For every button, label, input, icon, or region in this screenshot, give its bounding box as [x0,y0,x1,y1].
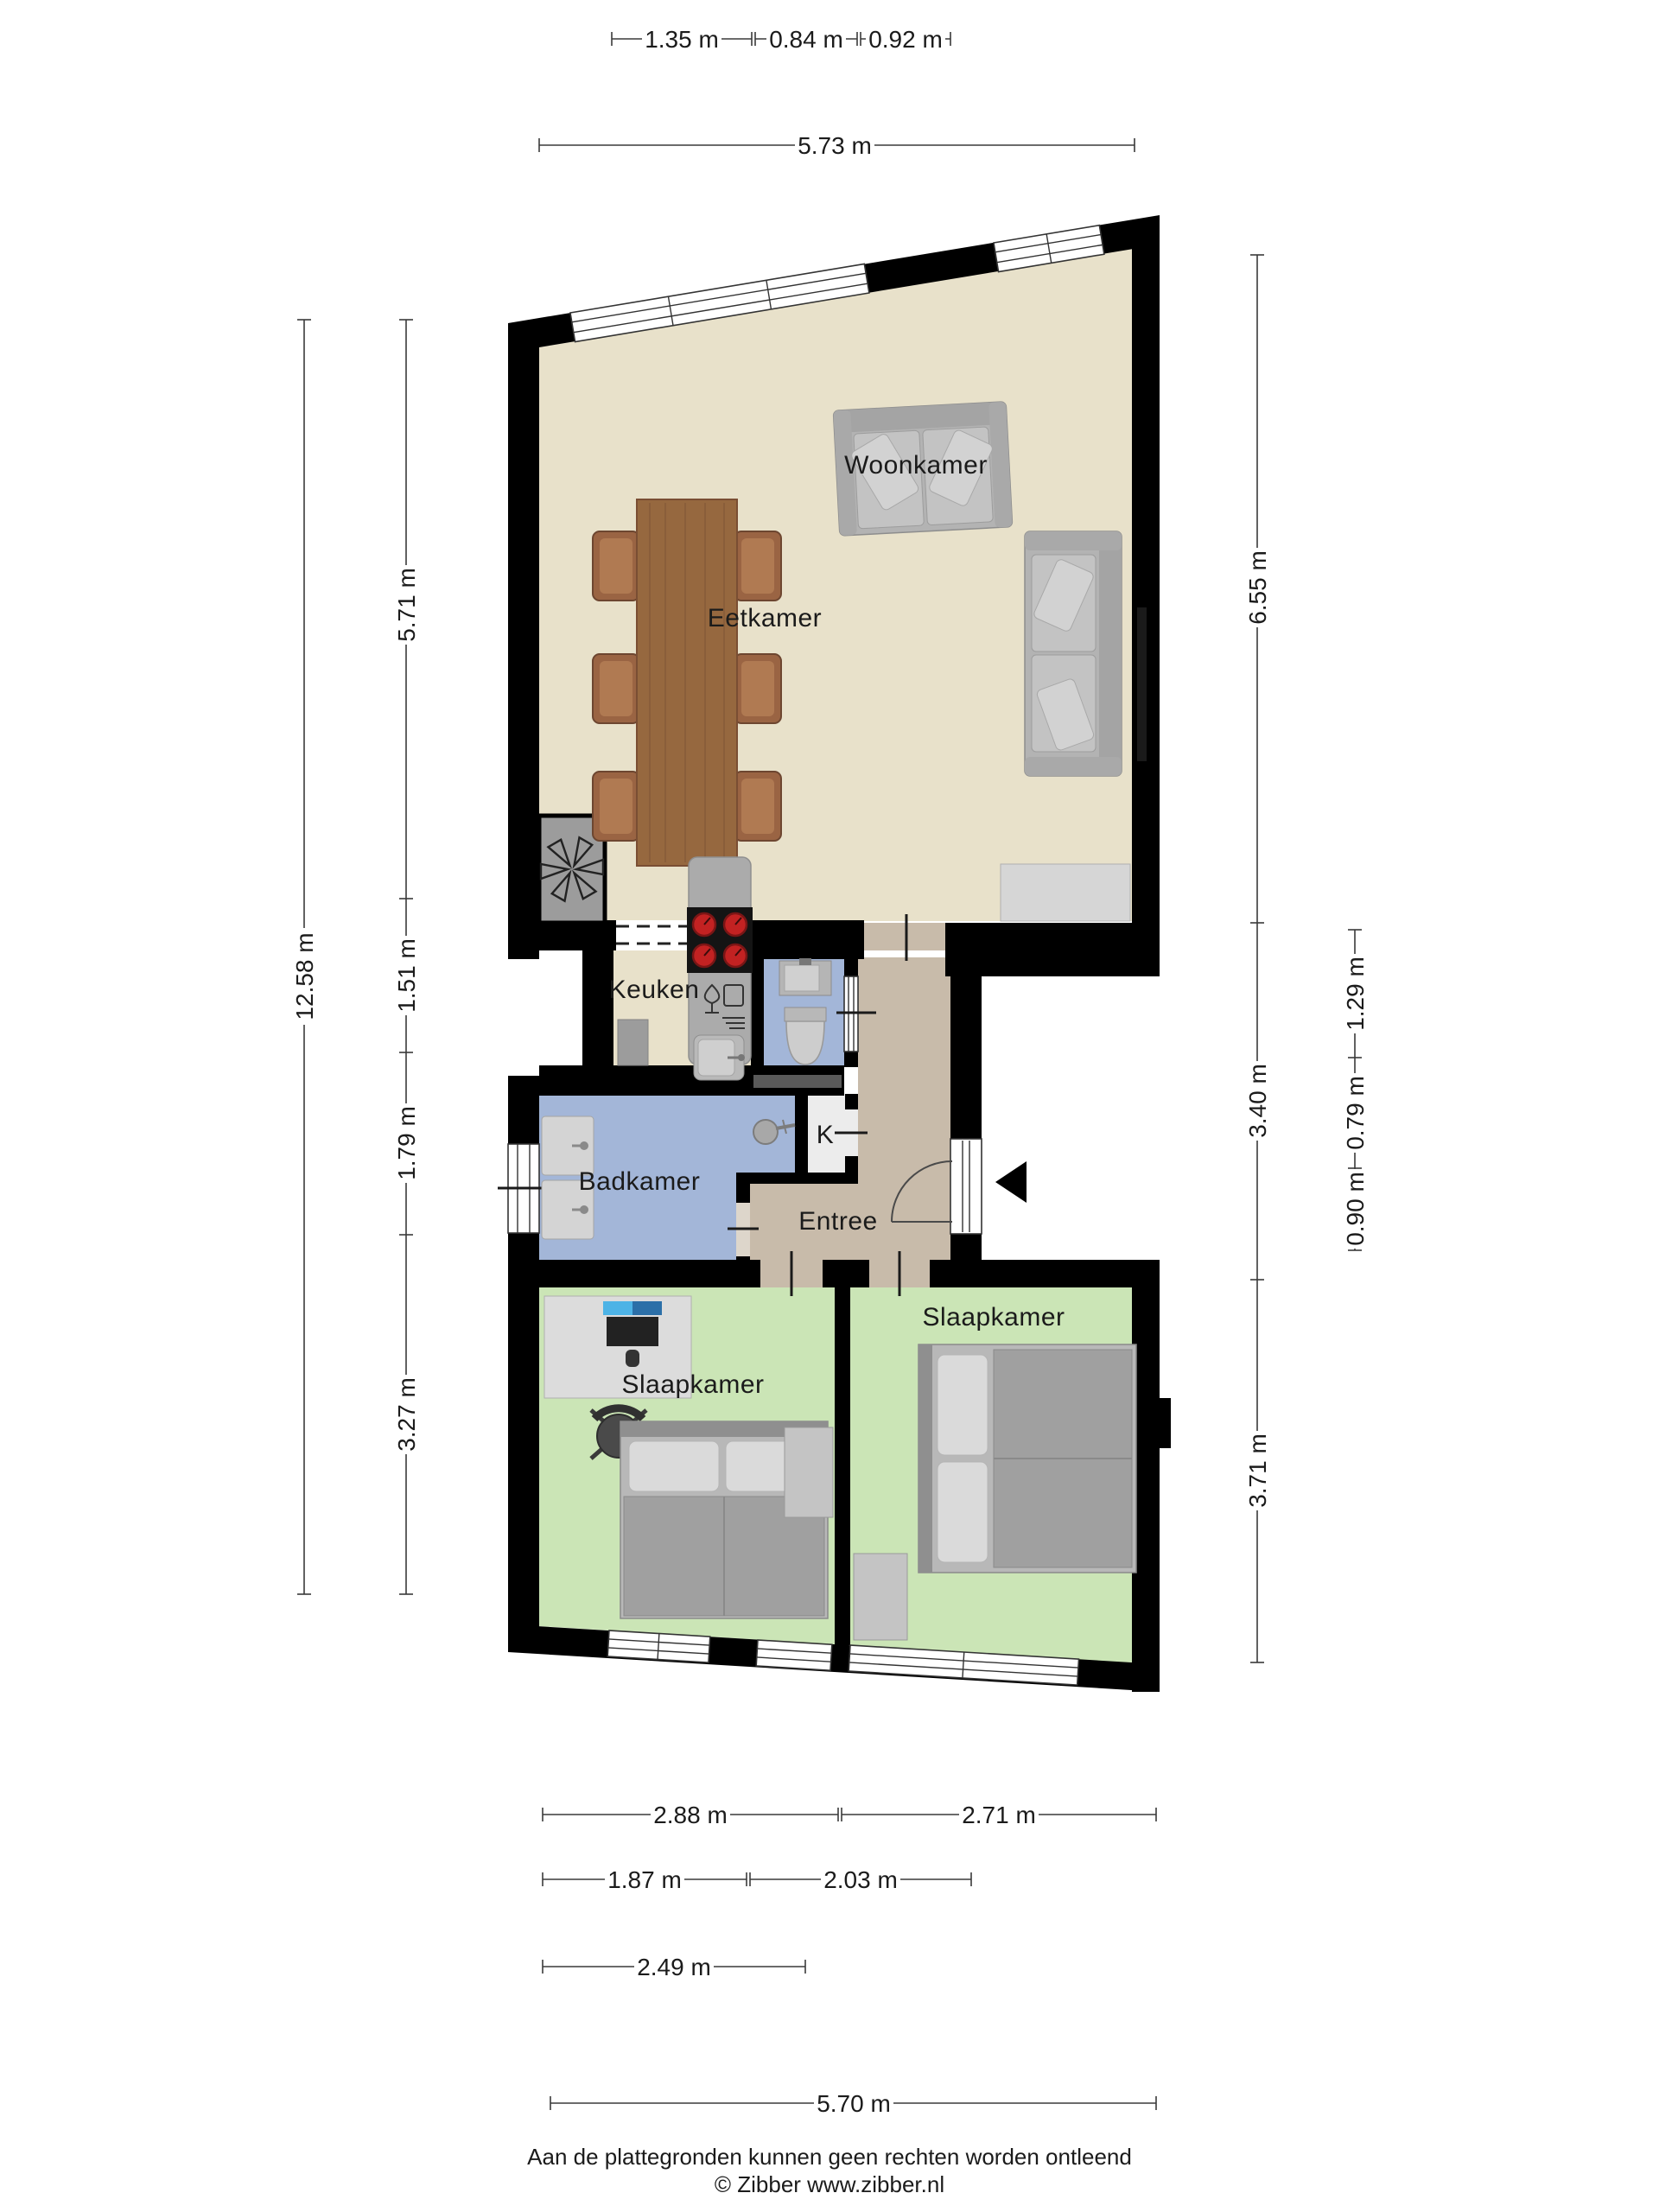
left-wall-upper [508,323,539,959]
floorplan-page: Woonkamer Eetkamer Keuken Badkamer K Ent… [0,0,1659,2212]
dim-left-segments: 5.71 m 1.51 m 1.79 m 3.27 m [391,320,421,1594]
svg-text:0.84 m: 0.84 m [769,26,843,53]
closet-left-wall [795,1094,808,1173]
bed-right [918,1344,1136,1573]
label-slaapkamer-left: Slaapkamer [621,1370,764,1399]
kitchen-cabinet [618,1020,648,1065]
label-badkamer: Badkamer [579,1167,701,1196]
wall-nub [1160,1398,1171,1448]
svg-text:6.55 m: 6.55 m [1244,550,1271,625]
kitchen-notch-wall [582,948,613,1076]
svg-text:5.70 m: 5.70 m [817,2090,891,2117]
tv-icon [1137,607,1147,761]
bedroom-right-top-wall [950,1260,1160,1287]
toilet-top-wall [751,920,864,959]
svg-text:5.71 m: 5.71 m [393,568,420,642]
svg-text:2.88 m: 2.88 m [653,1802,728,1828]
sofa-right [1025,531,1122,776]
svg-text:5.73 m: 5.73 m [798,132,872,159]
footer-disclaimer: Aan de plattegronden kunnen geen rechten… [527,2144,1132,2170]
floorplan-svg: Woonkamer Eetkamer Keuken Badkamer K Ent… [0,0,1659,2212]
label-entree: Entree [798,1207,877,1236]
svg-text:1.29 m: 1.29 m [1342,957,1369,1031]
svg-text:3.71 m: 3.71 m [1244,1433,1271,1508]
svg-text:2.71 m: 2.71 m [962,1802,1036,1828]
svg-text:1.87 m: 1.87 m [607,1866,682,1893]
label-keuken: Keuken [609,976,700,1004]
footer: Aan de plattegronden kunnen geen rechten… [527,2144,1132,2197]
wardrobe-right [854,1554,907,1640]
label-slaapkamer-right: Slaapkamer [922,1303,1065,1332]
closet-bottom-wall [736,1173,858,1184]
footer-copyright: © Zibber www.zibber.nl [715,2171,944,2197]
dim-right-segments: 6.55 m 3.40 m 3.71 m [1243,255,1272,1662]
svg-text:12.58 m: 12.58 m [291,932,318,1020]
dim-bottom-r2b: 2.03 m [750,1865,971,1894]
label-closet: K [817,1121,835,1149]
svg-text:3.27 m: 3.27 m [393,1377,420,1452]
dim-left-total: 12.58 m [289,320,319,1594]
dim-bottom-r1b: 2.71 m [842,1800,1156,1829]
dim-bottom-r2a: 1.87 m [543,1865,747,1894]
right-wall-livingroom [1132,220,1160,976]
toilet-lowcabinet [753,1075,842,1088]
bedroom-divider-wall [835,1287,850,1645]
svg-text:0.79 m: 0.79 m [1342,1076,1369,1150]
dim-top-2: 0.84 m [755,24,857,54]
svg-text:0.90 m: 0.90 m [1342,1172,1369,1246]
dim-top-1: 1.35 m [612,24,752,54]
svg-text:1.35 m: 1.35 m [645,26,719,53]
svg-text:2.03 m: 2.03 m [823,1866,898,1893]
svg-text:1.79 m: 1.79 m [393,1106,420,1180]
toilet-left-wall [751,957,764,1067]
svg-text:0.92 m: 0.92 m [868,26,943,53]
dim-top-total: 5.73 m [539,130,1135,160]
wardrobe-left [785,1427,833,1517]
entrance-arrow-icon [995,1161,1027,1203]
dim-bottom-r3: 2.49 m [543,1952,805,1981]
svg-text:1.51 m: 1.51 m [393,938,420,1013]
dining-set [593,499,781,866]
label-eetkamer: Eetkamer [708,604,822,632]
kitchen-passage-opening [616,920,689,950]
kitchen-counter [687,857,753,1080]
dim-bottom-r1a: 2.88 m [543,1800,838,1829]
living-hall-opening [864,914,945,961]
sink-icon [694,1035,745,1080]
svg-text:3.40 m: 3.40 m [1244,1064,1271,1138]
bedroom-left-window-a [607,1630,710,1662]
tv-cabinet [1001,864,1130,921]
label-woonkamer: Woonkamer [844,451,988,480]
svg-text:2.49 m: 2.49 m [637,1954,711,1980]
dining-table [637,499,737,866]
dim-bottom-r4: 5.70 m [550,2088,1156,2118]
dim-right-inner: 1.29 m 0.79 m 0.90 m [1340,930,1370,1250]
dim-top-3: 0.92 m [861,24,950,54]
bedroom-left-window-b [756,1640,832,1670]
